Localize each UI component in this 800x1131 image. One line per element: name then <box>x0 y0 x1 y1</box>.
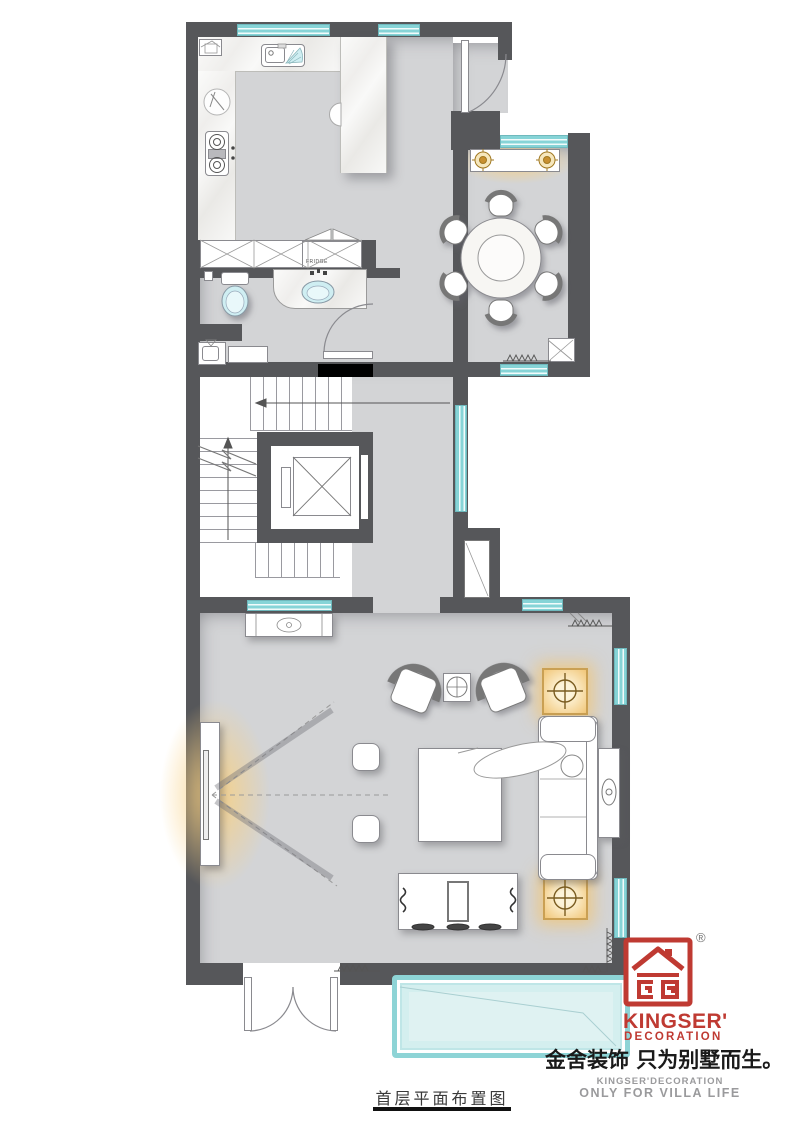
utility-wall-stub <box>196 324 242 341</box>
tv-cabinet-center-drawer <box>447 881 469 922</box>
dining-north-window <box>500 135 568 148</box>
sofa-armrest-bottom <box>540 854 596 880</box>
floor-plan-page: FRIDGE <box>0 0 800 1131</box>
brand-block: ® KINGSER' DECORATION 金舍装饰 只为别墅而生。 KINGS… <box>540 928 790 1108</box>
hall-cabinet <box>245 613 333 637</box>
dining-left-wall <box>453 148 468 377</box>
stool-bottom <box>352 815 380 843</box>
dining-floor <box>453 148 570 365</box>
brand-name-en2: DECORATION <box>624 1031 722 1043</box>
registered-trademark-icon: ® <box>696 930 706 945</box>
elevator-door-slit <box>361 455 368 519</box>
living-north-window <box>522 599 563 611</box>
entry-door-leaf <box>461 40 469 113</box>
floor-plan-caption: 首层平面布置图 <box>375 1085 509 1109</box>
flue-shaft <box>464 540 490 598</box>
dining-top-wall-block <box>451 111 500 150</box>
dining-console <box>470 149 560 172</box>
elevator-cabin-box <box>293 457 351 516</box>
double-door-swing-icon <box>250 987 336 1031</box>
brand-slogan-cn: 金舍装饰 只为别墅而生。 <box>545 1044 790 1074</box>
coffee-table <box>418 748 502 842</box>
lamp-table-north <box>542 668 588 715</box>
corridor-window <box>455 405 467 512</box>
dining-south-window <box>500 364 548 376</box>
elevator-counterweight <box>281 467 291 508</box>
stair-hall-window <box>247 600 332 611</box>
double-door-leaf-left <box>244 977 252 1031</box>
corner-shelf-icon <box>199 39 222 56</box>
side-table <box>443 673 471 702</box>
sub-slogan-en: ONLY FOR VILLA LIFE <box>540 1086 780 1100</box>
fridge-side-wall-stub <box>362 240 376 268</box>
living-east-window-1 <box>614 648 627 705</box>
sink-basin <box>265 47 285 63</box>
kitchen-entry-floor <box>198 37 453 362</box>
stool-top <box>352 743 380 771</box>
entry-door-jamb <box>498 22 512 60</box>
fridge-label: FRIDGE <box>306 259 328 265</box>
kingser-logo-icon <box>622 936 694 1008</box>
toilet-tank <box>221 272 249 285</box>
stairs-left-flight <box>200 437 258 543</box>
entry-top-window <box>378 24 420 36</box>
washer-cabinet-icon <box>228 346 268 363</box>
toilet-paper-holder <box>204 271 213 281</box>
tv-screen <box>203 750 209 840</box>
caption-underline <box>373 1107 511 1111</box>
wall-black-niche <box>318 364 373 377</box>
mop-sink-basin <box>202 346 219 361</box>
stairs-lower-flight <box>255 543 340 578</box>
cooktop-grate <box>208 149 226 159</box>
vanity-counter <box>273 269 367 309</box>
top-wall <box>186 22 512 37</box>
bottom-door-opening <box>243 963 340 985</box>
sofa-console <box>598 748 620 838</box>
stairs-upper-flight <box>250 377 352 431</box>
fridge-icon: FRIDGE <box>302 241 362 268</box>
sofa-back <box>586 720 598 876</box>
lamp-table-south <box>543 876 588 920</box>
dining-corner-panel <box>548 338 575 362</box>
double-door-leaf-right <box>330 977 338 1031</box>
sofa-armrest-top <box>540 716 596 742</box>
bathroom-door-leaf <box>323 351 373 359</box>
kitchen-partition <box>340 37 387 173</box>
kitchen-window <box>237 24 330 36</box>
